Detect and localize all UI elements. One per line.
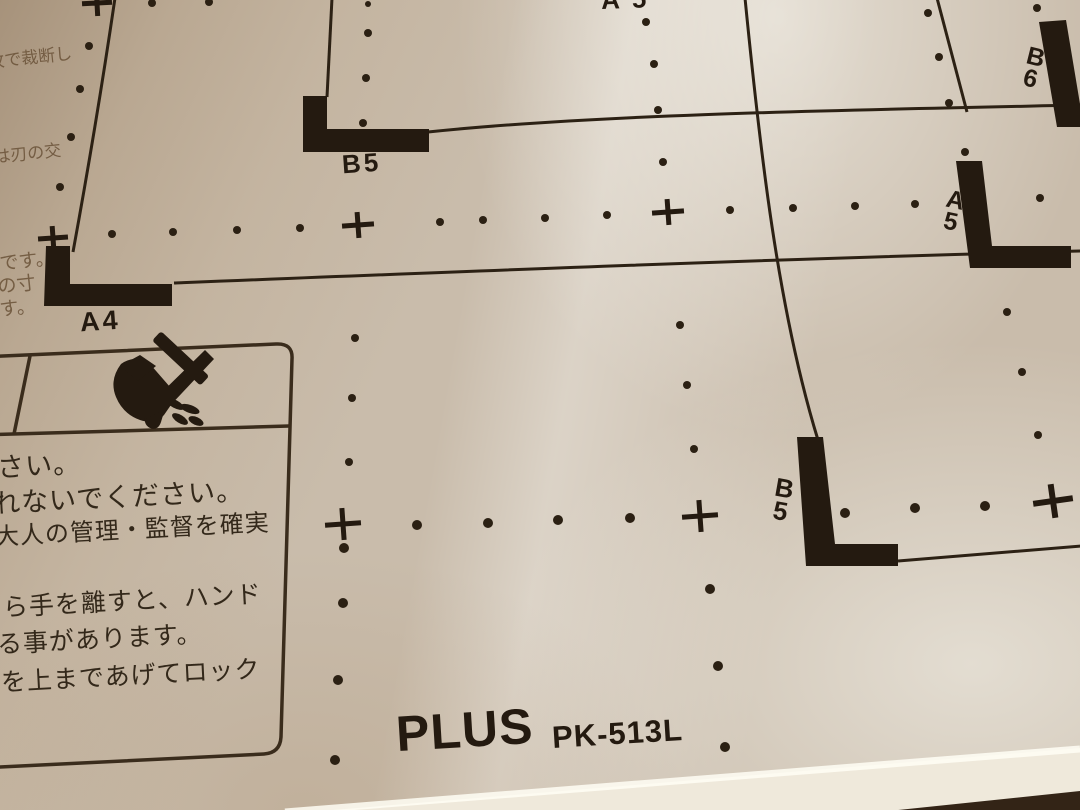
size-label-b5-portrait: B5: [341, 147, 382, 181]
left-vertical-guide-line: [73, 0, 115, 252]
a5-landscape-corner-bracket: [956, 161, 1071, 268]
crosshair-marks: [37, 0, 1075, 541]
center-right-vertical-guide-line: [745, 0, 818, 440]
size-label-a5-top: A5: [600, 0, 658, 16]
b6-landscape-corner-bracket: [1039, 20, 1080, 127]
crosshair-mark: [81, 0, 112, 17]
crosshair-mark: [1031, 481, 1075, 520]
warning-box-left-divider: [14, 356, 30, 434]
crosshair-mark: [681, 499, 719, 533]
upper-horizontal-guide-line: [428, 105, 1080, 132]
warning-box-divider: [0, 426, 289, 435]
margin-note-5: す。: [0, 291, 37, 322]
brand-logo: PLUS: [394, 697, 535, 763]
lower-horizontal-guide-line: [898, 546, 1080, 561]
middle-horizontal-guide-line: [174, 251, 1080, 283]
crosshair-mark: [651, 198, 685, 226]
dotted-guide-marks: [56, 0, 1044, 765]
b5-landscape-corner-bracket: [797, 437, 898, 566]
cutting-plate-photo: A5 B5 A4 B 6 A 5 B 5 枚で裁断し は刃の交 です。 の寸 す…: [0, 0, 1080, 810]
crosshair-mark: [341, 211, 375, 239]
a4-corner-bracket: [44, 246, 172, 306]
b5-feeder-guide-line: [327, 0, 332, 97]
size-label-a4: A4: [79, 305, 122, 339]
crosshair-mark: [324, 507, 362, 541]
